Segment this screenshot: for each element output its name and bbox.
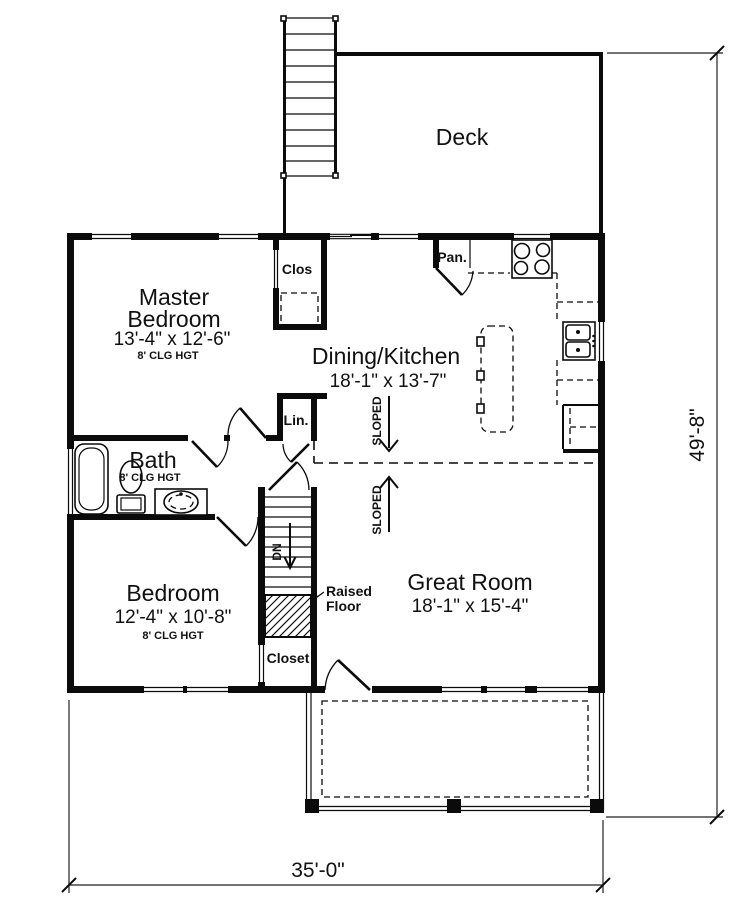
pantry-door (462, 271, 473, 295)
dining-kitchen-dims: 18'-1" x 13'-7" (330, 371, 447, 392)
ceiling-annotations (314, 396, 597, 532)
bedroom-dims: 12'-4" x 10'-8" (115, 607, 232, 628)
porch (305, 693, 604, 813)
bath-ceiling: 8' CLG HGT (119, 472, 181, 484)
bath-label: Bath (129, 447, 176, 473)
stair-door (297, 462, 309, 490)
bath-door (217, 441, 228, 467)
deck-label: Deck (436, 124, 489, 150)
dining-kitchen-label: Dining/Kitchen (312, 343, 460, 369)
pantry-label: Pan. (437, 249, 467, 265)
vanity-sink (155, 489, 207, 515)
closet-door-opening (258, 645, 265, 682)
kitchen-sink (563, 322, 595, 360)
sloped-upper-label: SLOPED (370, 396, 384, 446)
kitchen-island (477, 326, 513, 432)
bedroom-label: Bedroom (126, 580, 219, 606)
interior-stairs (265, 497, 311, 587)
great-room-label: Great Room (407, 569, 532, 595)
raised-floor-label-line1: Raised (326, 583, 372, 599)
stairs-dn-label: DN (270, 543, 284, 560)
floor-plan-page: Deck Master Bedroom 13'-4" x 12'-6" 8' C… (0, 0, 750, 915)
sloped-lower-label: SLOPED (370, 485, 384, 535)
deck-slider-door (328, 233, 373, 240)
master-ceiling: 8' CLG HGT (137, 350, 199, 362)
master-door (228, 408, 240, 438)
master-dims: 13'-4" x 12'-6" (114, 329, 231, 350)
front-door (325, 660, 338, 690)
upper-closet-label: Clos (282, 261, 313, 277)
raised-floor-label-line2: Floor (326, 598, 362, 614)
linen-label: Lin. (284, 412, 309, 428)
range (512, 240, 552, 278)
great-room-dims: 18'-1" x 15'-4" (412, 596, 529, 617)
lower-closet-label: Closet (267, 650, 310, 666)
bedroom-ceiling: 8' CLG HGT (142, 630, 204, 642)
door-swings (192, 268, 473, 690)
floor-plan-canvas: Deck Master Bedroom 13'-4" x 12'-6" 8' C… (0, 0, 750, 915)
refrigerator (563, 405, 598, 449)
linen-door (283, 444, 291, 462)
bedroom-door (246, 517, 258, 546)
kitchen (468, 240, 598, 449)
bath-window (67, 447, 74, 518)
depth-dimension-label: 49'-8" (686, 408, 709, 462)
kitchen-window (598, 320, 605, 363)
front-door-opening (325, 686, 372, 693)
master-closet-walls (273, 240, 327, 330)
width-dimension-label: 35'-0" (291, 859, 345, 882)
